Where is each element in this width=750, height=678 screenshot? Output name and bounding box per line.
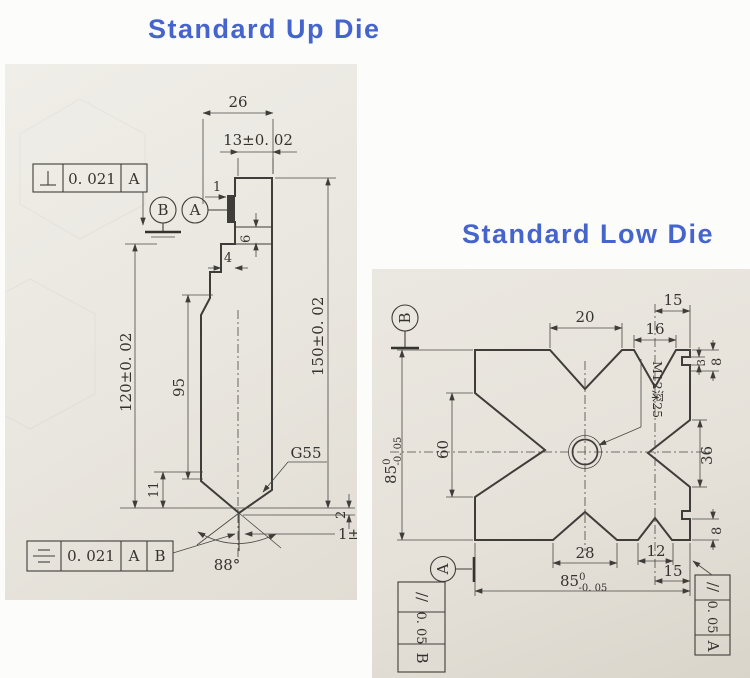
svg-text:0. 021: 0. 021 [67, 547, 115, 565]
datum-balloon-a: A [182, 197, 227, 223]
dim-height: 850-0. 05 [382, 350, 473, 540]
svg-text:1±0. 02: 1±0. 02 [338, 525, 357, 543]
svg-text:G55: G55 [290, 444, 321, 462]
dim-neck-width: 4 [208, 251, 248, 268]
datum-balloon-a: A [431, 557, 475, 583]
dim-ledge: 1 [205, 180, 226, 197]
svg-text:B: B [396, 312, 414, 323]
low-die-drawing: 20 16 15 8 3 36 8 [372, 269, 750, 678]
svg-text:60: 60 [434, 440, 452, 459]
dim-side-v-height: 36 [692, 420, 716, 487]
svg-text:A: A [128, 170, 140, 188]
dim-left-v-height: 60 [434, 393, 473, 497]
screenshot-root: { "titles": { "up_die": "Standard Up Die… [0, 0, 750, 678]
svg-text:B: B [154, 547, 165, 565]
svg-text:95: 95 [170, 378, 188, 397]
svg-text:0. 05: 0. 05 [413, 611, 428, 644]
parallelism-icon: // [413, 592, 431, 603]
datum-balloon-b: B [391, 305, 419, 348]
svg-text:4: 4 [224, 251, 232, 266]
svg-text:A: A [434, 563, 452, 575]
svg-text:36: 36 [698, 446, 716, 465]
svg-text:28: 28 [575, 544, 594, 562]
symmetry-icon [33, 550, 55, 562]
svg-text:15: 15 [663, 562, 682, 580]
svg-text:26: 26 [228, 93, 247, 111]
up-die-drawing-photo: 26 13±0. 02 1 6 4 120±0. 02 95 [5, 64, 357, 600]
svg-text:A: A [128, 547, 140, 565]
svg-text:12: 12 [646, 542, 665, 560]
clamp-ledge [228, 196, 235, 222]
up-die-title: Standard Up Die [148, 14, 381, 45]
svg-text:A: A [704, 640, 722, 652]
dim-tip-section: 11 [147, 472, 203, 508]
perpendicularity-icon [40, 171, 56, 185]
dim-tip-width: 1±0. 02 [245, 525, 357, 543]
low-die-drawing-photo: 20 16 15 8 3 36 8 [372, 269, 750, 678]
fcf-perpendicularity: 0. 021 A [33, 164, 147, 225]
svg-text:8: 8 [710, 358, 725, 366]
dim-tang-width: 13±0. 02 [220, 131, 297, 176]
svg-text:15: 15 [663, 291, 682, 309]
dim-body-height: 120±0. 02 [117, 244, 157, 508]
dim-v3-width: 28 [553, 543, 617, 568]
svg-text:0. 021: 0. 021 [68, 170, 116, 188]
dim-tip-land: 2 [334, 494, 349, 529]
svg-text:B: B [413, 652, 431, 663]
svg-text:850-0. 05: 850-0. 05 [382, 437, 404, 484]
svg-text:16: 16 [645, 320, 664, 338]
svg-text:B: B [157, 201, 168, 219]
up-die-drawing: 26 13±0. 02 1 6 4 120±0. 02 95 [5, 64, 357, 600]
svg-text:M12深25: M12深25 [650, 361, 665, 418]
svg-text:A: A [189, 201, 201, 219]
svg-text:13±0. 02: 13±0. 02 [223, 131, 293, 149]
svg-text:2: 2 [334, 511, 349, 519]
thread-note: M12深25 [599, 359, 665, 445]
svg-text:8: 8 [710, 527, 725, 535]
dim-shoulder-height: 6 [239, 213, 256, 257]
dim-straight-length: 95 [170, 295, 213, 479]
fcf-parallelism-left: // 0. 05 B [398, 582, 445, 672]
dim-tip-angle: 88° [198, 532, 276, 574]
dim-v1-width: 20 [550, 308, 622, 348]
svg-text:3: 3 [695, 359, 708, 366]
fcf-parallelism-right: // 0. 05 A [693, 561, 730, 655]
svg-text:1: 1 [213, 180, 221, 195]
svg-text:11: 11 [147, 481, 162, 498]
svg-text:0. 05: 0. 05 [704, 600, 719, 633]
svg-text:20: 20 [575, 308, 594, 326]
svg-text:88°: 88° [214, 556, 241, 574]
datum-balloon-b: B [145, 197, 181, 237]
svg-text:120±0. 02: 120±0. 02 [117, 333, 135, 412]
parallelism-icon: // [704, 582, 722, 593]
low-die-title: Standard Low Die [462, 219, 714, 250]
svg-text:6: 6 [239, 235, 254, 243]
dim-bottom-corner-step: 8 [692, 509, 725, 550]
svg-text:150±0. 02: 150±0. 02 [309, 297, 327, 376]
